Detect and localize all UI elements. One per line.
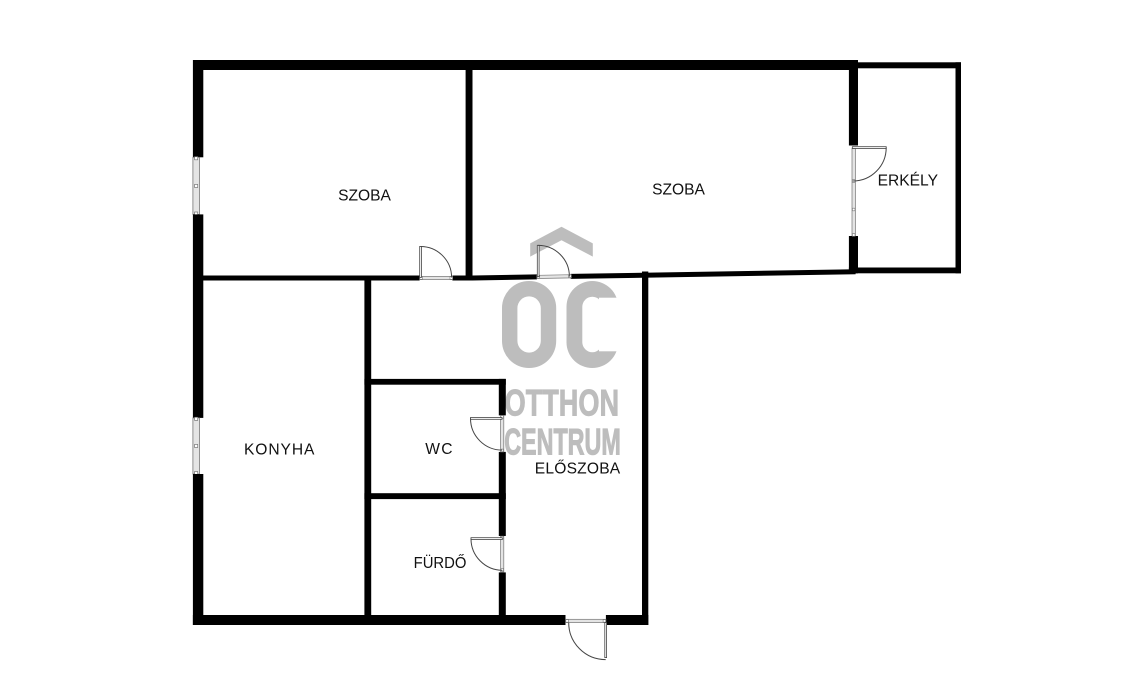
svg-text:SZOBA: SZOBA <box>652 182 705 199</box>
svg-text:SZOBA: SZOBA <box>338 187 391 204</box>
svg-text:FÜRDŐ: FÜRDŐ <box>414 554 467 572</box>
svg-text:ELŐSZOBA: ELŐSZOBA <box>535 458 621 477</box>
svg-text:ERKÉLY: ERKÉLY <box>878 170 939 189</box>
svg-text:WC: WC <box>425 441 452 458</box>
svg-text:OTTHON: OTTHON <box>505 383 619 424</box>
svg-text:CENTRUM: CENTRUM <box>504 421 621 463</box>
svg-text:KONYHA: KONYHA <box>244 441 315 458</box>
